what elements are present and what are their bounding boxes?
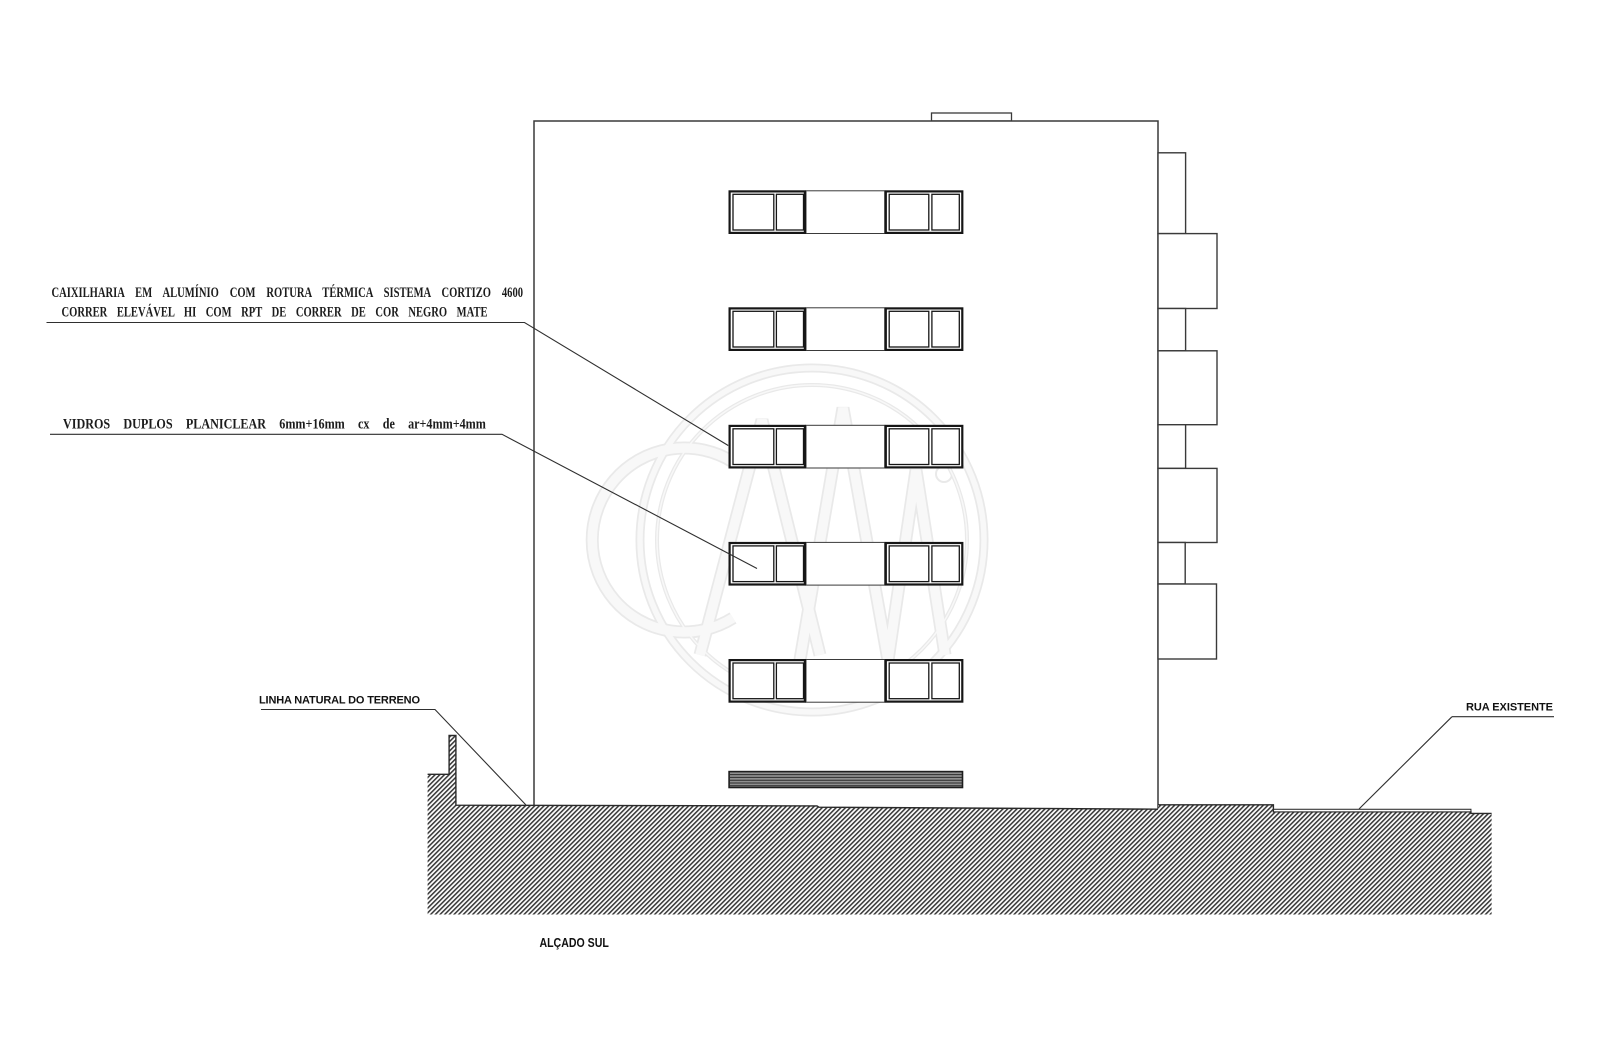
svg-text:ALÇADO SUL: ALÇADO SUL (539, 935, 608, 950)
svg-text:LINHA NATURAL DO TERRENO: LINHA NATURAL DO TERRENO (259, 694, 420, 706)
svg-text:CORRER ELEVÁVEL HI COM RPT DE: CORRER ELEVÁVEL HI COM RPT DE CORRER DE … (62, 303, 488, 320)
svg-text:CAIXILHARIA EM ALUMÍNIO COM RO: CAIXILHARIA EM ALUMÍNIO COM ROTURA TÉRMI… (51, 283, 523, 300)
svg-text:VIDROS DUPLOS PLANICLEAR 6mm+1: VIDROS DUPLOS PLANICLEAR 6mm+16mm cx de … (63, 415, 486, 431)
svg-text:RUA EXISTENTE: RUA EXISTENTE (1466, 701, 1553, 713)
